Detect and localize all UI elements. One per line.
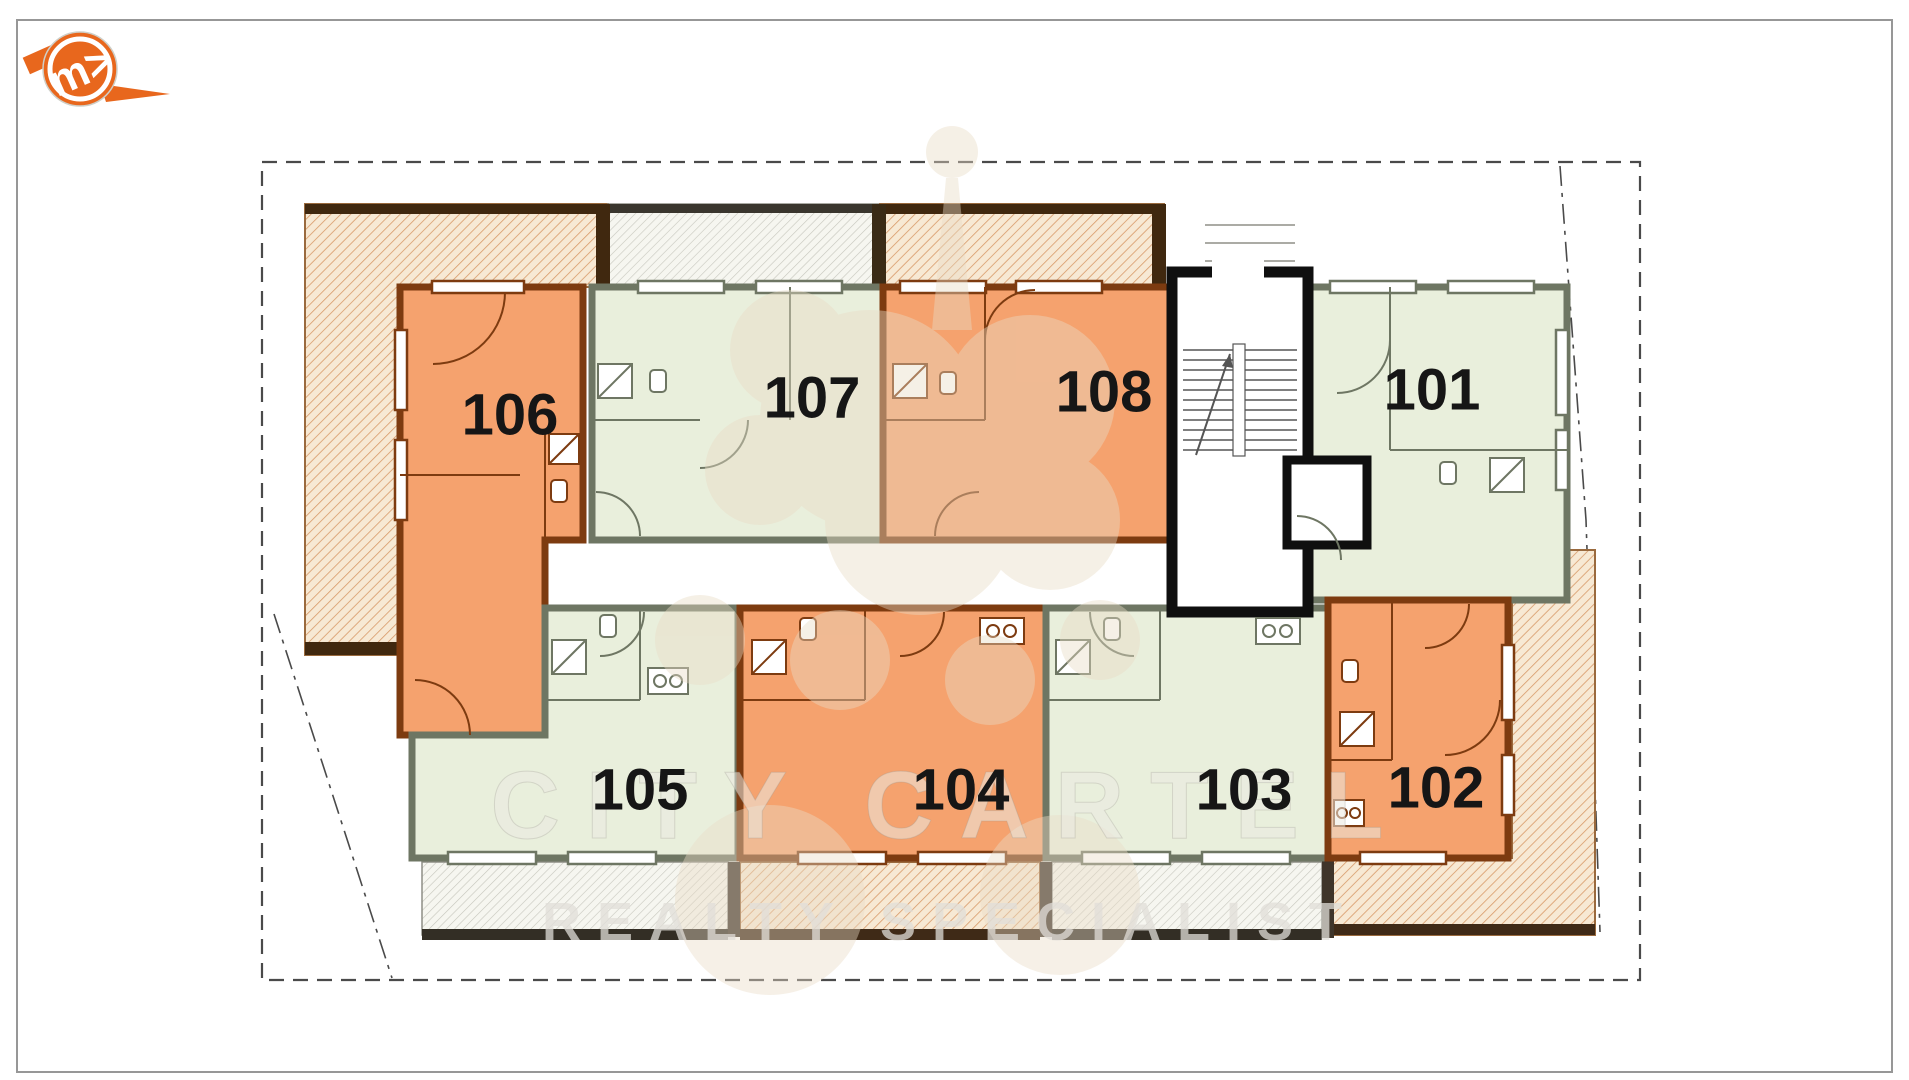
- window: [1448, 281, 1534, 293]
- window: [1502, 645, 1514, 720]
- window: [1502, 755, 1514, 815]
- balcony-unit-107: [608, 204, 880, 287]
- lot-edge-line-left: [274, 614, 392, 978]
- terrace-bottom-band: [305, 642, 400, 655]
- terrace-pier: [1152, 204, 1166, 287]
- floor-plan-page: CITY CARTEL REALTY SPECIALIST 106 107 10…: [0, 0, 1909, 1080]
- window: [432, 281, 524, 293]
- terrace-top-band-2: [880, 204, 1164, 214]
- terrace-edge-band: [1328, 924, 1595, 935]
- window: [1556, 430, 1568, 490]
- window: [1330, 281, 1416, 293]
- unit-101-label: 101: [1384, 358, 1481, 423]
- unit-106-label: 106: [462, 383, 559, 448]
- unit-101-area[interactable]: [1297, 287, 1567, 600]
- window: [395, 440, 407, 520]
- terrace-top-band: [305, 204, 608, 214]
- window: [1556, 330, 1568, 415]
- terrace-unit-108: [880, 204, 1164, 287]
- elevator-shaft: [1287, 460, 1367, 545]
- unit-102-label: 102: [1388, 756, 1485, 821]
- unit-108-label: 108: [1056, 360, 1153, 425]
- unit-107-label: 107: [764, 366, 861, 431]
- floor-plan-drawing: CITY CARTEL REALTY SPECIALIST 106 107 10…: [0, 0, 1909, 1080]
- balcony-top-band: [608, 204, 880, 213]
- stairwell-entrance-gap: [1212, 260, 1264, 284]
- window: [395, 330, 407, 410]
- company-logo: m>: [23, 32, 170, 106]
- terrace-pier: [872, 204, 886, 287]
- entry-porch-steps: [1205, 225, 1295, 261]
- window: [638, 281, 724, 293]
- unit-104-label: 104: [913, 758, 1010, 823]
- stair-stringer: [1233, 344, 1245, 456]
- unit-105-label: 105: [592, 758, 689, 823]
- watermark-line2: REALTY SPECIALIST: [542, 892, 1358, 952]
- unit-103-label: 103: [1196, 758, 1293, 823]
- terrace-pier: [596, 204, 610, 287]
